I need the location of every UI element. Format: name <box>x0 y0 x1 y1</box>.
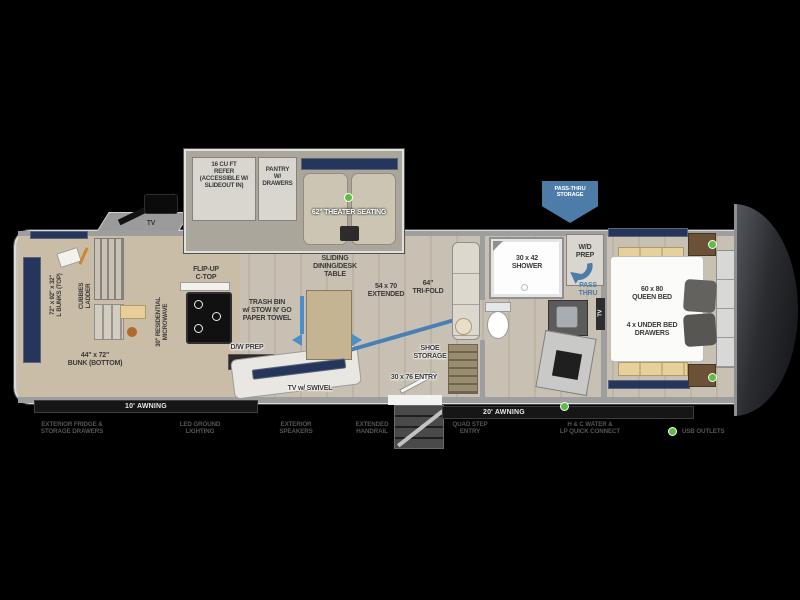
bed-bench-bottom <box>618 362 688 376</box>
feature-water-lp: H & C WATER & LP QUICK CONNECT <box>538 421 642 436</box>
cubbies-ladder-label: CUBBIES LADDER <box>79 251 93 341</box>
bath-wall-left <box>480 234 485 300</box>
flip-up-label: FLIP-UP C-TOP <box>176 266 236 282</box>
theater-tv-strip <box>301 158 398 170</box>
exterior-tv-icon <box>144 194 178 214</box>
burner-2 <box>212 312 221 321</box>
flip-up-counter <box>180 282 230 291</box>
front-cap <box>734 204 798 416</box>
usb-outlet-dot <box>708 240 717 249</box>
theater-label: 62" THEATER SEATING <box>293 209 405 217</box>
slide-arrow-right-icon <box>352 334 362 346</box>
sofa-pillow <box>455 318 472 335</box>
under-bed-label: 4 x UNDER BED DRAWERS <box>610 322 694 338</box>
bunk-rear-window <box>23 257 41 363</box>
fireplace-insert <box>552 350 582 380</box>
bed-tv-label: TV <box>597 301 603 326</box>
dw-prep-label: D/W PREP <box>217 344 277 352</box>
awning-left-label: 10' AWNING <box>125 403 167 410</box>
dining-table <box>306 290 352 360</box>
feature-led-lighting: LED GROUND LIGHTING <box>150 421 250 436</box>
usb-outlet-dot <box>708 373 717 382</box>
bunk-cushion <box>120 305 146 319</box>
slide-arrow-left-icon <box>292 334 302 346</box>
burner-3 <box>194 324 203 333</box>
usb-outlet-dot <box>344 193 353 202</box>
burner-1 <box>194 300 203 309</box>
teddy-graphic <box>127 327 137 337</box>
feature-exterior-speakers: EXTERIOR SPEAKERS <box>256 421 336 436</box>
shower-label: 30 x 42 SHOWER <box>494 255 560 271</box>
bed-window-top <box>608 228 688 237</box>
entry-label: 30 x 76 ENTRY <box>364 374 464 382</box>
usb-legend-dot-icon <box>668 427 677 436</box>
entry-opening <box>388 395 442 405</box>
tv-swivel-label: TV w/ SWIVEL <box>260 385 360 393</box>
pass-thru-label: PASS THRU <box>568 282 608 298</box>
shoe-storage-label: SHOE STORAGE <box>405 345 455 361</box>
bunks-top-label: 72" x 92" x 32" L BUNKS (TOP) <box>50 250 64 340</box>
wd-prep-label: W/D PREP <box>566 244 604 260</box>
shower-drain-icon <box>521 284 528 291</box>
pass-thru-storage-label: PASS-THRU STORAGE <box>542 186 598 199</box>
theater-console <box>340 226 359 241</box>
usb-legend-label: USB OUTLETS <box>682 428 752 435</box>
refer-label: 16 CU FT REFER (ACCESSIBLE W/ SLIDEOUT I… <box>192 162 256 190</box>
toilet-bowl <box>487 311 509 339</box>
sliding-table-label: SLIDING DINING/DESK TABLE <box>295 255 375 278</box>
bunk-tv-label: TV <box>136 220 166 228</box>
bath-sink <box>556 306 578 328</box>
feature-exterior-fridge: EXTERIOR FRIDGE & STORAGE DRAWERS <box>12 421 132 436</box>
awning-right-label: 20' AWNING <box>483 409 525 416</box>
pantry-label: PANTRY W/ DRAWERS <box>258 167 297 188</box>
bath-wall-left-lower <box>480 340 485 398</box>
floorplan: 16 CU FT REFER (ACCESSIBLE W/ SLIDEOUT I… <box>0 0 800 600</box>
bunk-bottom-label: 44" x 72" BUNK (BOTTOM) <box>45 352 145 368</box>
usb-outlet-dot <box>560 402 569 411</box>
queen-bed-label: 60 x 80 QUEEN BED <box>612 286 692 302</box>
cooktop <box>186 292 232 344</box>
trifold-label: 64" TRI-FOLD <box>403 280 453 296</box>
bunk-tv-strip <box>30 231 88 239</box>
cubbies <box>94 238 124 300</box>
trash-label: TRASH BIN w/ STOW N' GO PAPER TOWEL <box>227 299 307 322</box>
awning-bar-left: 10' AWNING <box>34 400 258 413</box>
microwave-label: 30" RESIDENTIAL MICROWAVE <box>156 277 170 367</box>
bed-window-bottom <box>608 380 690 389</box>
